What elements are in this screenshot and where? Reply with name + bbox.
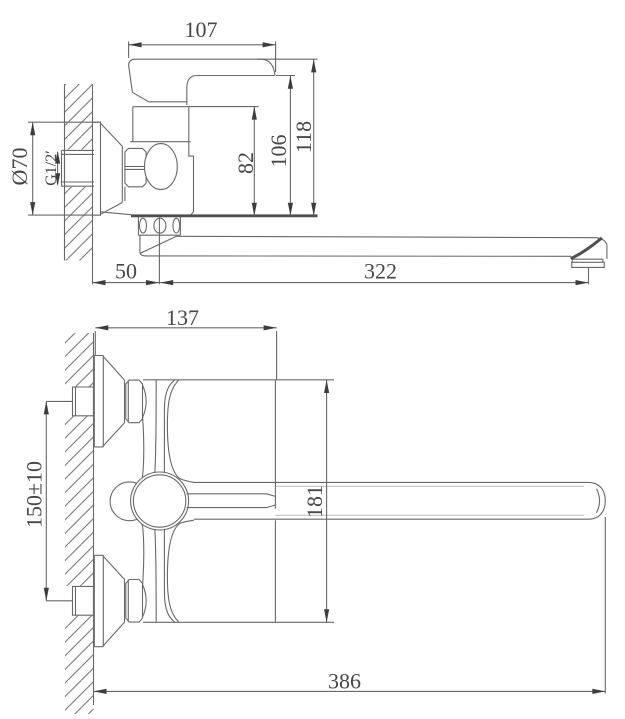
svg-text:137: 137 <box>166 305 199 330</box>
svg-text:50: 50 <box>115 259 137 284</box>
svg-text:107: 107 <box>185 17 218 42</box>
svg-text:181: 181 <box>302 485 327 518</box>
svg-text:322: 322 <box>364 259 397 284</box>
svg-text:G1/2′: G1/2′ <box>43 150 60 186</box>
svg-text:106: 106 <box>266 135 291 168</box>
svg-text:Ø70: Ø70 <box>7 148 32 186</box>
svg-text:118: 118 <box>291 121 316 153</box>
svg-text:386: 386 <box>328 669 361 694</box>
svg-text:82: 82 <box>233 152 258 174</box>
svg-text:150±10: 150±10 <box>21 461 46 528</box>
